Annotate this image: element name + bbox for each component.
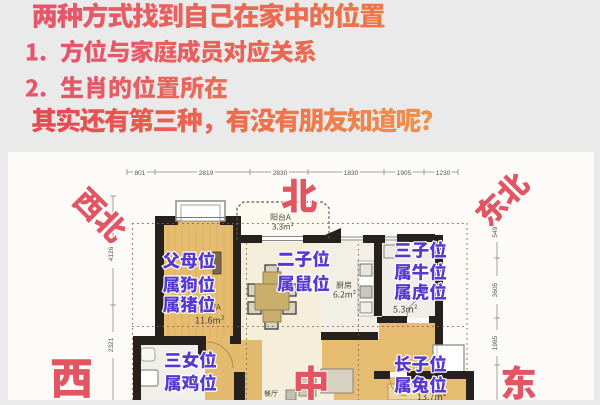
svg-text:1985: 1985: [492, 335, 499, 350]
svg-text:2830: 2830: [273, 170, 288, 177]
svg-text:2819: 2819: [199, 170, 214, 177]
svg-text:1830: 1830: [344, 170, 359, 177]
svg-text:801: 801: [135, 170, 146, 177]
svg-text:1230: 1230: [436, 170, 451, 177]
svg-text:549: 549: [492, 226, 499, 237]
svg-text:1905: 1905: [397, 170, 412, 177]
svg-text:4126: 4126: [108, 246, 115, 261]
svg-text:2321: 2321: [108, 337, 115, 352]
svg-text:3605: 3605: [492, 282, 499, 297]
